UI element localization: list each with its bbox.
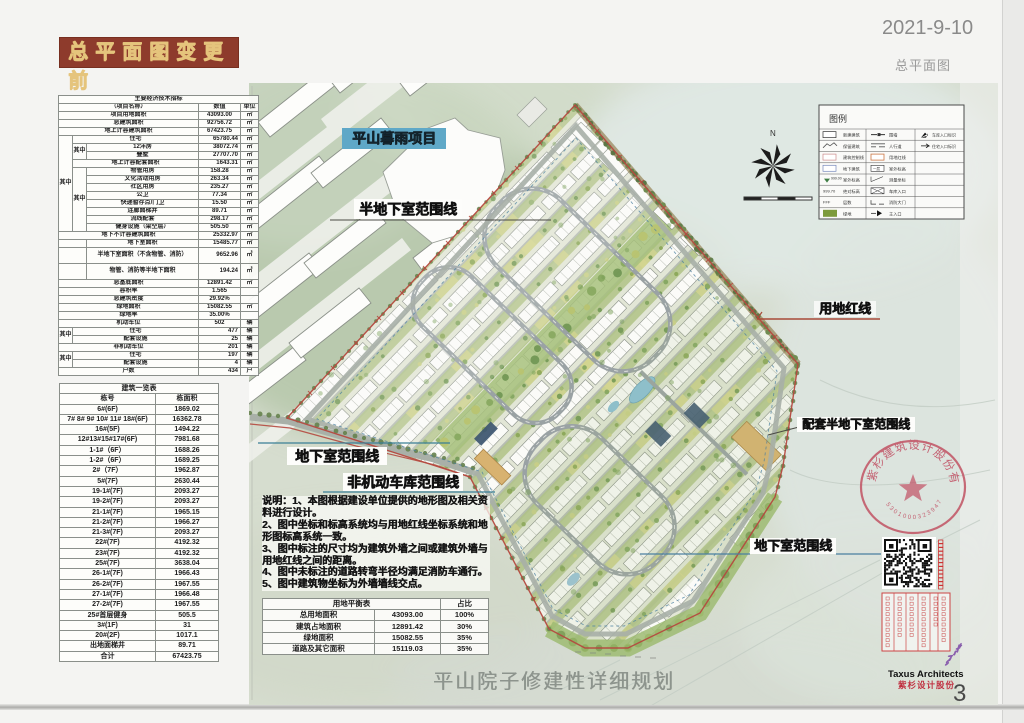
svg-text:人行道: 人行道	[889, 143, 902, 150]
svg-text:5301000323947: 5301000323947	[884, 498, 944, 521]
svg-text:999.70: 999.70	[823, 188, 836, 193]
svg-text:保留建筑: 保留建筑	[843, 143, 861, 150]
svg-text:绝对标高: 绝对标高	[843, 188, 860, 195]
svg-text:测量坐标: 测量坐标	[889, 177, 906, 184]
svg-text:室外标高: 室外标高	[843, 177, 860, 184]
svg-text:用地红线: 用地红线	[889, 154, 907, 161]
svg-text:绿地: 绿地	[843, 210, 852, 216]
svg-text:紫杉建筑设计股份有限公司: 紫杉建筑设计股份有限公司	[851, 431, 962, 486]
svg-text:999.00: 999.00	[831, 177, 842, 181]
svg-text:图例: 图例	[829, 113, 847, 124]
svg-text:新建建筑: 新建建筑	[843, 132, 861, 139]
svg-text:地下建筑: 地下建筑	[843, 165, 861, 172]
svg-text:车库入口: 车库入口	[889, 188, 906, 195]
svg-text:车库入口标识: 车库入口标识	[932, 132, 956, 138]
svg-text:消防大门: 消防大门	[889, 199, 906, 206]
svg-text:一层: 一层	[873, 166, 881, 171]
svg-text:建筑控制线: 建筑控制线	[843, 154, 865, 161]
svg-text:N: N	[770, 129, 776, 138]
svg-text:围墙: 围墙	[889, 132, 897, 139]
svg-text:FFF: FFF	[823, 200, 831, 205]
svg-text:室外标高: 室外标高	[889, 165, 906, 172]
svg-text:层数: 层数	[843, 199, 852, 206]
svg-text:主入口: 主入口	[889, 210, 902, 216]
svg-text:住宅入口标识: 住宅入口标识	[932, 143, 956, 149]
